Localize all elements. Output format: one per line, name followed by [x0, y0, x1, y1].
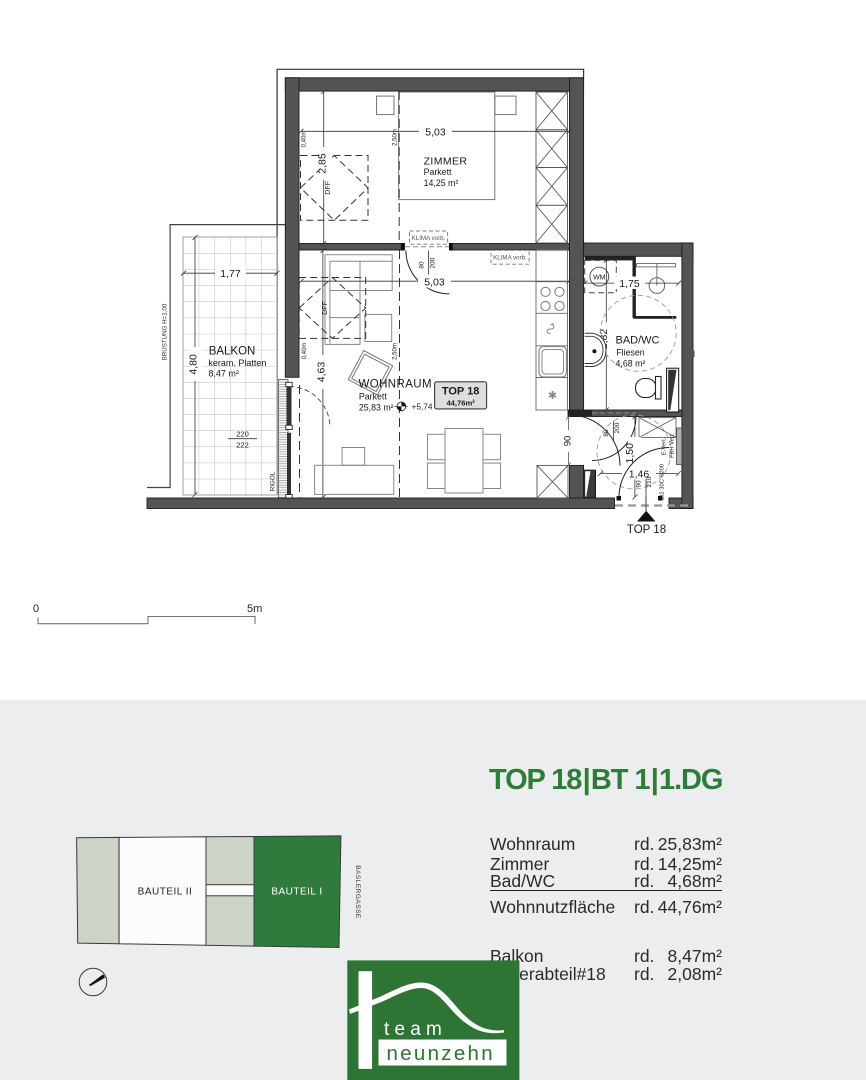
- svg-text:E-Vert.: E-Vert.: [662, 437, 668, 455]
- svg-text:DFF: DFF: [325, 181, 332, 195]
- svg-text:200: 200: [430, 257, 437, 268]
- svg-text:14,25 m²: 14,25 m²: [424, 178, 459, 188]
- svg-text:Fliesen: Fliesen: [616, 348, 644, 358]
- svg-text:keram. Platten: keram. Platten: [208, 358, 266, 368]
- svg-text:90: 90: [563, 436, 574, 447]
- svg-text:TOP 18: TOP 18: [627, 524, 666, 536]
- svg-text:1,77: 1,77: [220, 268, 241, 280]
- svg-text:BRÜSTUNG H=1,00: BRÜSTUNG H=1,00: [162, 303, 169, 360]
- svg-text:4,68 m²: 4,68 m²: [616, 359, 646, 369]
- svg-text:5,03: 5,03: [424, 276, 445, 288]
- svg-text:5m: 5m: [247, 603, 262, 615]
- svg-text:BAUTEIL I: BAUTEIL I: [271, 887, 322, 898]
- svg-text:EI2 30C S200: EI2 30C S200: [660, 464, 666, 500]
- svg-text:0,40m: 0,40m: [302, 131, 308, 148]
- svg-text:✱: ✱: [548, 390, 557, 402]
- svg-text:222: 222: [236, 441, 249, 450]
- svg-text:BAD/WC: BAD/WC: [616, 335, 660, 347]
- svg-text:8,47 m²: 8,47 m²: [208, 369, 239, 379]
- svg-text:1,75: 1,75: [619, 278, 640, 290]
- svg-text:WOHNRAUM: WOHNRAUM: [359, 379, 432, 391]
- svg-text:ZIMMER: ZIMMER: [424, 156, 468, 168]
- svg-text:+5,74: +5,74: [412, 402, 433, 412]
- svg-text:KLIMA vorb.: KLIMA vorb.: [493, 255, 527, 262]
- svg-text:0: 0: [33, 603, 39, 615]
- svg-text:44,76m²: 44,76m²: [446, 399, 475, 408]
- svg-text:Parkett: Parkett: [424, 167, 452, 177]
- svg-text:4,80: 4,80: [188, 354, 200, 375]
- svg-text:2,85: 2,85: [316, 153, 328, 174]
- svg-text:FBH Vert.: FBH Vert.: [670, 433, 676, 459]
- svg-text:KLIMA vorb.: KLIMA vorb.: [412, 235, 446, 242]
- svg-text:200: 200: [614, 422, 621, 433]
- svg-text:team: team: [384, 1019, 447, 1040]
- svg-text:BAUTEIL II: BAUTEIL II: [138, 887, 193, 898]
- svg-text:0,40m: 0,40m: [302, 343, 308, 360]
- svg-text:neunzehn: neunzehn: [387, 1042, 495, 1065]
- svg-text:Parkett: Parkett: [359, 392, 387, 402]
- svg-text:80: 80: [419, 261, 426, 269]
- svg-text:1,50: 1,50: [624, 443, 636, 464]
- svg-text:BALKON: BALKON: [209, 346, 256, 358]
- svg-text:90: 90: [636, 480, 643, 488]
- svg-text:RIGOL: RIGOL: [270, 471, 277, 491]
- svg-text:210: 210: [646, 476, 653, 487]
- svg-text:5,03: 5,03: [425, 127, 446, 139]
- svg-text:WM: WM: [593, 274, 606, 281]
- svg-text:BASLERGASSE: BASLERGASSE: [354, 865, 361, 919]
- svg-text:2,50m: 2,50m: [393, 343, 399, 360]
- svg-text:TOP 18: TOP 18: [442, 386, 480, 398]
- svg-text:4,63: 4,63: [316, 362, 328, 383]
- svg-text:25,83 m²: 25,83 m²: [359, 403, 394, 413]
- svg-text:220: 220: [236, 430, 249, 439]
